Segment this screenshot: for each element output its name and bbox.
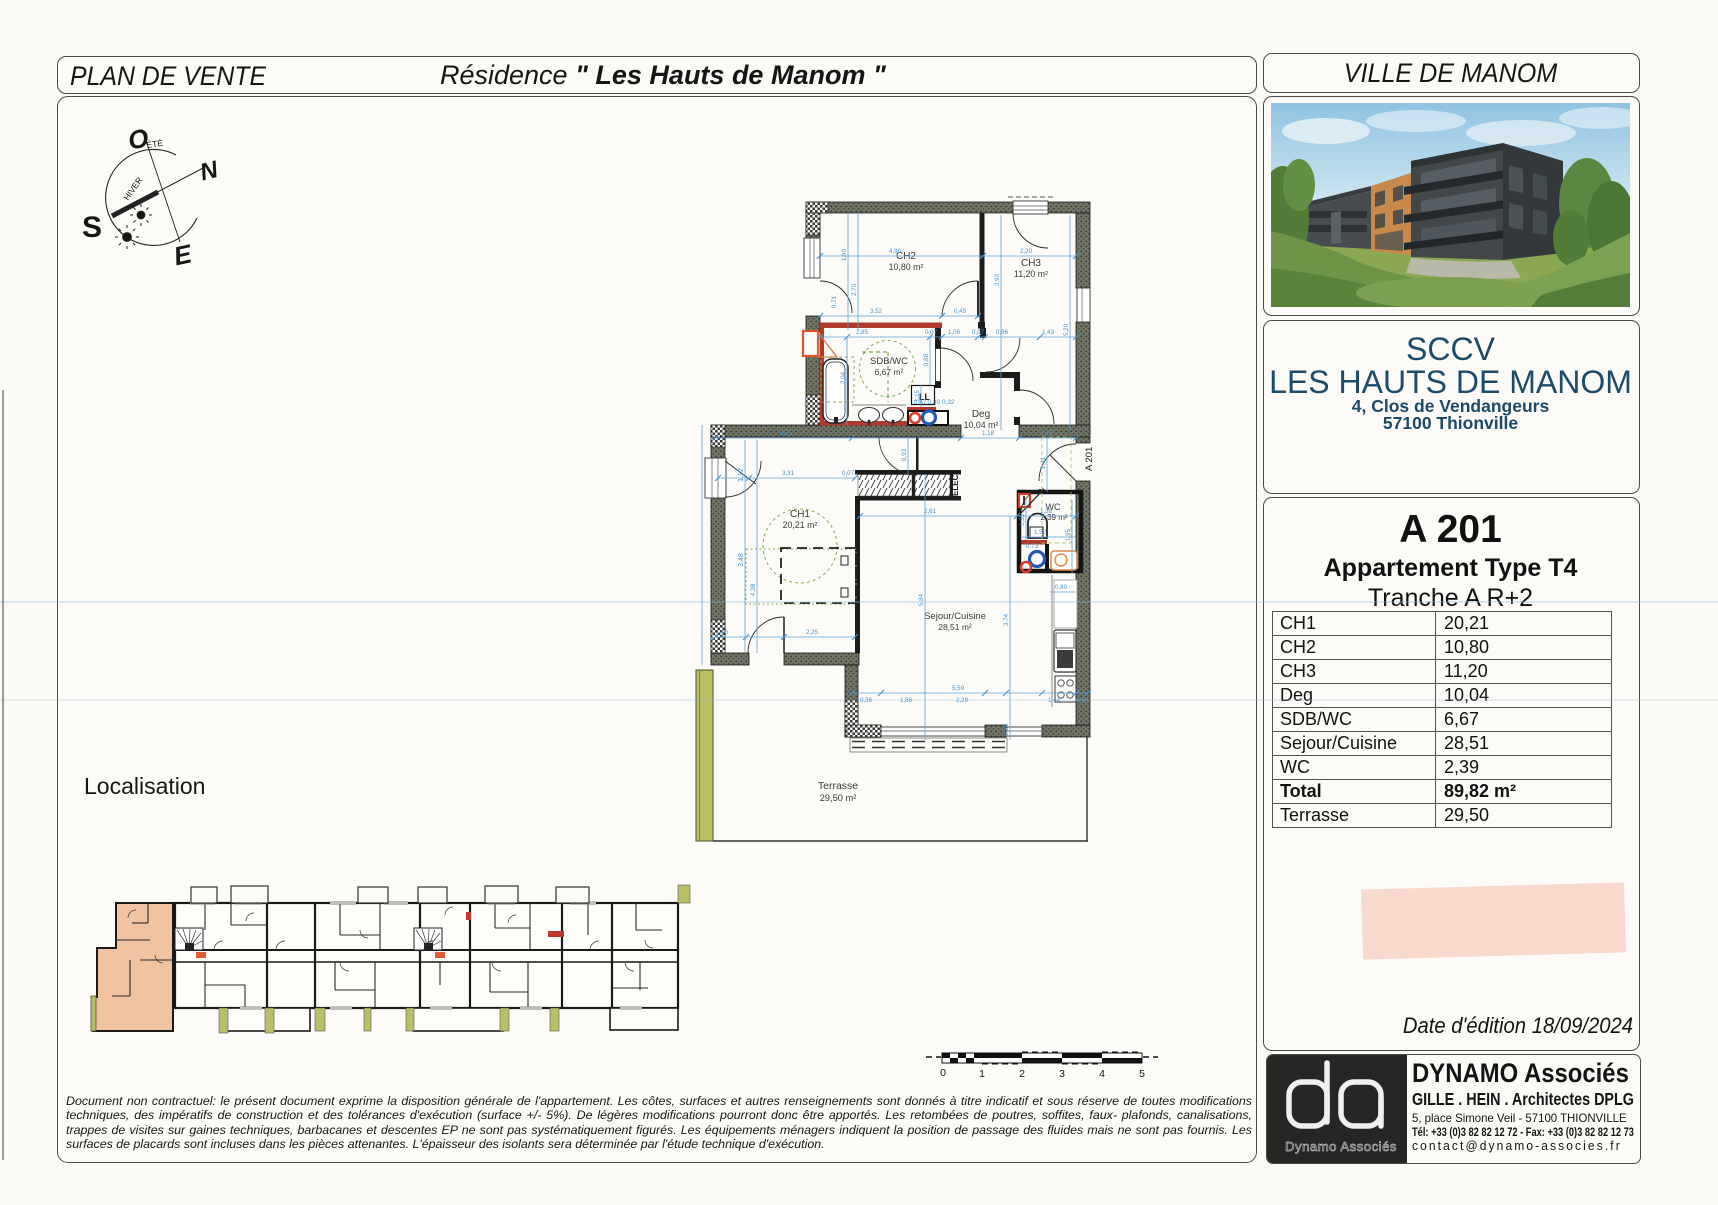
- svg-text:1,35: 1,35: [1020, 514, 1026, 526]
- svg-text:1,12: 1,12: [738, 468, 745, 482]
- svg-text:SDB/WC: SDB/WC: [870, 356, 908, 367]
- svg-text:3,48: 3,48: [738, 553, 745, 567]
- svg-text:28,51 m²: 28,51 m²: [938, 622, 972, 632]
- svg-text:0,45: 0,45: [954, 308, 967, 315]
- svg-text:11,20 m²: 11,20 m²: [1014, 269, 1048, 279]
- svg-text:3,31: 3,31: [782, 470, 795, 477]
- svg-text:N: N: [197, 156, 221, 187]
- svg-text:2,20: 2,20: [1020, 248, 1033, 255]
- svg-text:1,43: 1,43: [1042, 329, 1055, 336]
- svg-text:0,36: 0,36: [1003, 723, 1010, 736]
- svg-text:1,95: 1,95: [1066, 529, 1072, 541]
- svg-text:0,96: 0,96: [996, 329, 1009, 336]
- svg-text:1,52: 1,52: [1034, 529, 1047, 536]
- svg-text:1,15: 1,15: [915, 390, 921, 402]
- svg-text:1: 1: [979, 1068, 985, 1080]
- svg-text:3: 3: [1059, 1068, 1065, 1080]
- svg-text:A 201: A 201: [1084, 447, 1095, 471]
- svg-text:0,07: 0,07: [972, 329, 985, 336]
- svg-text:3,52: 3,52: [870, 308, 883, 315]
- svg-text:Sejour/Cuisine: Sejour/Cuisine: [924, 611, 986, 622]
- svg-text:4,71: 4,71: [780, 430, 793, 437]
- svg-text:2: 2: [1019, 1068, 1025, 1080]
- svg-text:1,38: 1,38: [1040, 508, 1053, 515]
- svg-text:Terrasse: Terrasse: [818, 780, 858, 792]
- svg-text:Dynamo Associés: Dynamo Associés: [1285, 1139, 1397, 1154]
- svg-text:ÉTÉ: ÉTÉ: [146, 138, 164, 150]
- svg-text:4,90: 4,90: [889, 248, 902, 255]
- svg-text:29,50 m²: 29,50 m²: [820, 793, 857, 803]
- svg-text:5,59: 5,59: [952, 685, 965, 692]
- svg-text:5,84: 5,84: [918, 593, 925, 606]
- svg-text:CH3: CH3: [1021, 258, 1041, 269]
- svg-text:0,93: 0,93: [901, 448, 908, 461]
- svg-text:2,85: 2,85: [856, 329, 869, 336]
- svg-text:2,61: 2,61: [924, 508, 937, 515]
- svg-text:5,20: 5,20: [1063, 323, 1070, 336]
- svg-text:0,30 0,32: 0,30 0,32: [927, 399, 954, 406]
- svg-text:0,07: 0,07: [925, 329, 938, 336]
- svg-text:2,25: 2,25: [806, 629, 819, 636]
- svg-text:CH1: CH1: [790, 509, 810, 520]
- svg-text:0,73: 0,73: [1026, 543, 1039, 550]
- svg-text:E: E: [171, 238, 195, 271]
- svg-text:0: 0: [940, 1067, 946, 1079]
- svg-text:1,90: 1,90: [841, 248, 848, 261]
- svg-text:10,04 m²: 10,04 m²: [964, 420, 999, 430]
- svg-text:1,41: 1,41: [1040, 456, 1047, 469]
- svg-text:0,07: 0,07: [842, 470, 855, 477]
- svg-text:1,49: 1,49: [1040, 430, 1053, 437]
- svg-text:2,70: 2,70: [851, 283, 858, 296]
- svg-text:5: 5: [1139, 1068, 1145, 1080]
- svg-text:4: 4: [1099, 1068, 1105, 1080]
- svg-text:2,04: 2,04: [840, 371, 847, 384]
- svg-text:1,18: 1,18: [982, 430, 995, 437]
- svg-text:20,21 m²: 20,21 m²: [783, 520, 818, 530]
- svg-text:3,74: 3,74: [1003, 613, 1010, 626]
- svg-text:4,38: 4,38: [750, 583, 757, 596]
- svg-text:ELEC: ELEC: [951, 474, 960, 496]
- svg-text:1,06: 1,06: [716, 629, 729, 636]
- svg-text:0,88: 0,88: [923, 353, 930, 366]
- svg-text:0,80: 0,80: [1055, 584, 1068, 591]
- svg-text:0,71: 0,71: [831, 295, 838, 308]
- svg-text:3,93: 3,93: [994, 273, 1001, 286]
- svg-text:1,06: 1,06: [948, 329, 961, 336]
- svg-text:Deg: Deg: [972, 409, 990, 420]
- svg-text:S: S: [82, 211, 102, 244]
- svg-text:10,80 m²: 10,80 m²: [889, 262, 924, 272]
- svg-text:6,67 m²: 6,67 m²: [875, 367, 904, 377]
